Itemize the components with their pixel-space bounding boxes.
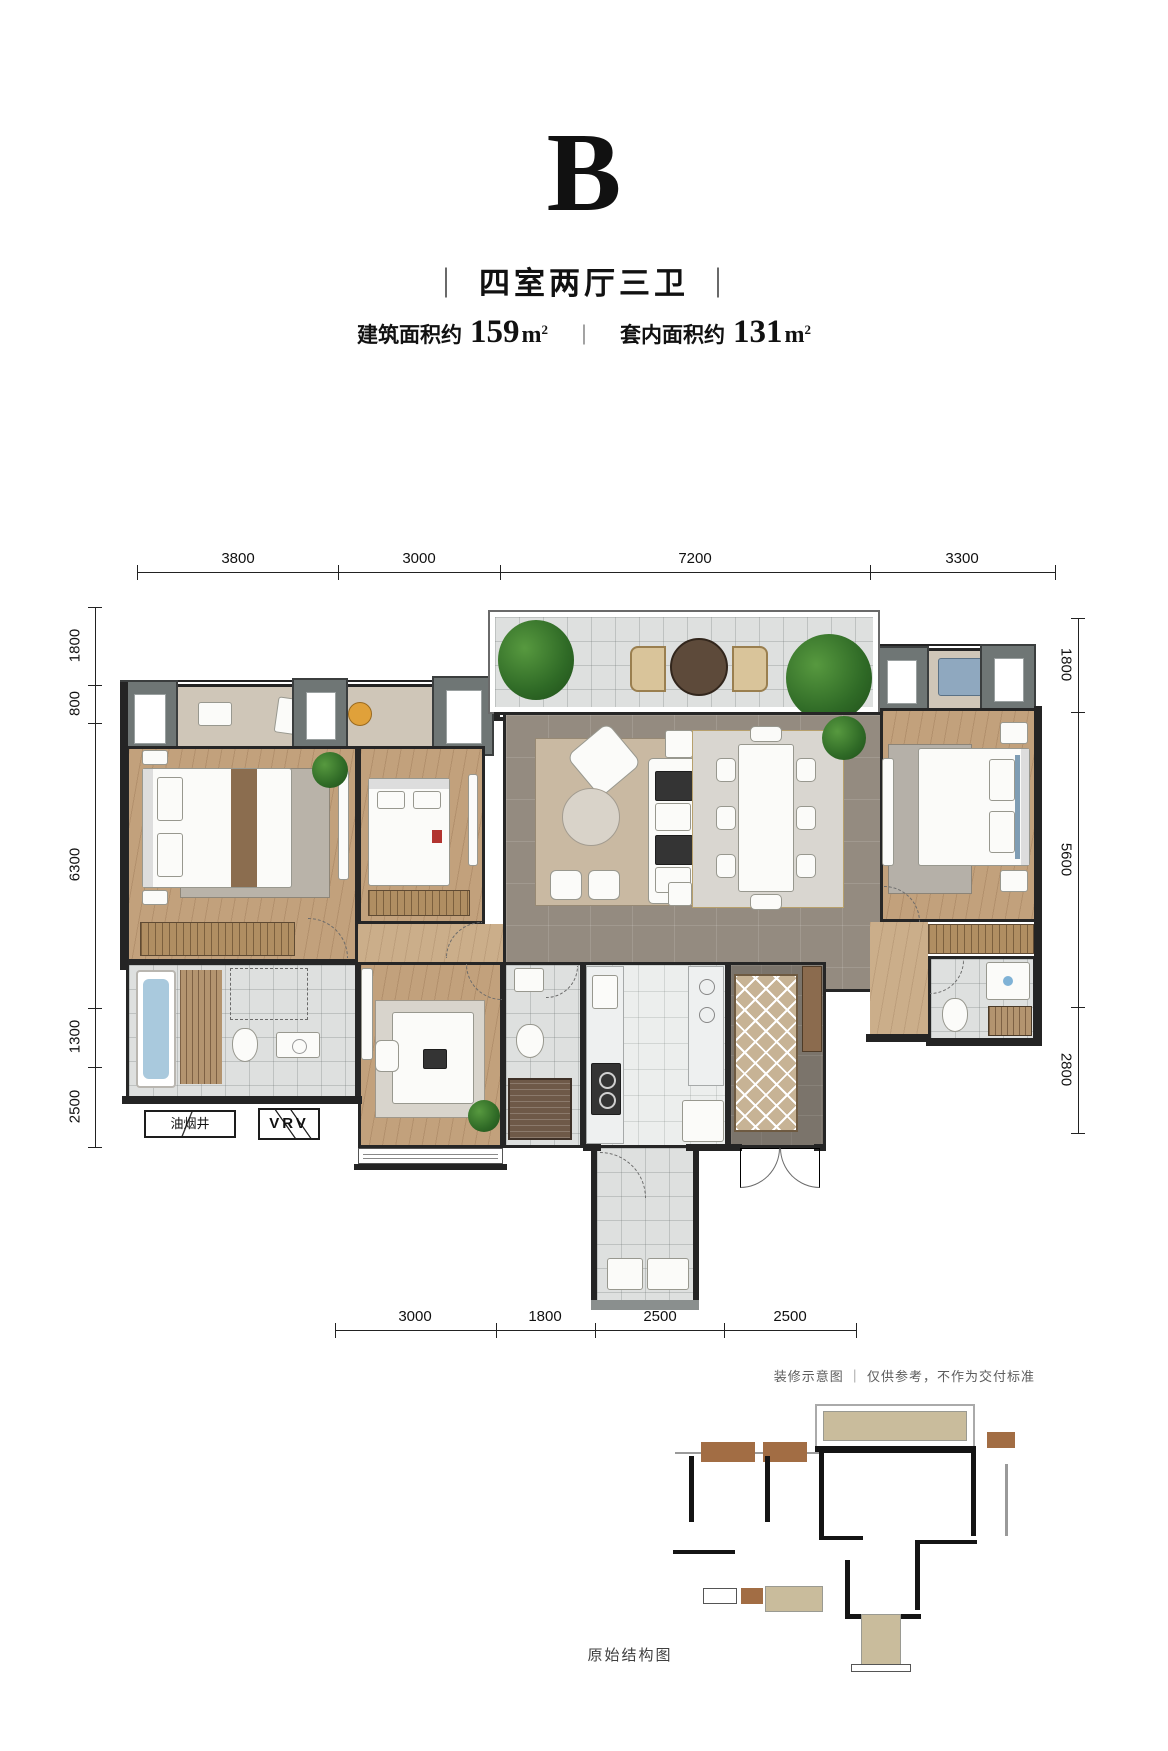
sd-brown-bar — [987, 1432, 1015, 1448]
sd-entry-corridor — [861, 1614, 901, 1666]
fruit-plate — [348, 702, 372, 726]
dim-label: 1800 — [505, 1308, 585, 1325]
toilet — [942, 998, 968, 1032]
sd-wall — [765, 1456, 770, 1522]
wall — [354, 1164, 507, 1170]
dining-table — [738, 744, 794, 892]
double-bed — [918, 748, 1030, 866]
sd-wall — [819, 1536, 863, 1540]
side-table — [668, 882, 692, 906]
toilet — [516, 1024, 544, 1058]
column — [292, 678, 348, 752]
corridor-cabinet — [647, 1258, 689, 1290]
wall — [120, 682, 128, 970]
sink — [514, 968, 544, 992]
entry-door-arc — [780, 1148, 820, 1188]
sd-wall — [689, 1456, 694, 1522]
nightstand — [1000, 722, 1028, 744]
dim-label: 2500 — [750, 1308, 830, 1325]
side-table — [665, 730, 693, 758]
inner-area-unit: m — [785, 322, 805, 348]
entry-rug — [734, 974, 798, 1132]
sd-wall — [915, 1540, 977, 1544]
column — [873, 646, 929, 716]
smoke-shaft-label: 油烟井 — [170, 1116, 209, 1131]
dim-label: 6300 — [67, 825, 84, 905]
structure-caption: 原始结构图 — [560, 1644, 700, 1664]
plant — [312, 752, 348, 788]
tv-cabinet — [338, 770, 349, 880]
dim-label: 3000 — [375, 1308, 455, 1325]
dim-label: 2800 — [1058, 1030, 1075, 1110]
entry-door-arc — [740, 1148, 780, 1188]
sd-brown-bar — [701, 1442, 755, 1462]
desk — [392, 1012, 474, 1104]
hallway-master — [870, 922, 928, 1040]
coffee-table — [562, 788, 620, 846]
vrv-label: VRV — [269, 1115, 309, 1132]
dining-chair — [716, 854, 736, 878]
unit-letter: B — [0, 112, 1168, 235]
inner-area-label: 套内面积约 — [620, 323, 725, 347]
book-decor — [432, 830, 442, 843]
dining-chair — [716, 758, 736, 782]
sd-balcony — [823, 1411, 967, 1441]
balcony-table — [670, 638, 728, 696]
vanity-sink — [276, 1032, 320, 1058]
wall — [866, 1034, 930, 1042]
column — [120, 680, 178, 756]
shower-floor — [508, 1078, 572, 1140]
tv-cabinet — [468, 774, 478, 866]
column — [980, 644, 1036, 714]
wall — [926, 1038, 1042, 1046]
bath-mat — [180, 970, 222, 1084]
sd-step — [851, 1664, 911, 1672]
entry-cabinet — [802, 966, 822, 1052]
smoke-shaft-box: 油烟井 — [144, 1110, 236, 1138]
plant — [498, 620, 574, 700]
wall — [693, 1148, 699, 1306]
wall — [591, 1148, 597, 1306]
sd-wall — [1005, 1464, 1008, 1536]
dim-label: 2500 — [620, 1308, 700, 1325]
gross-area-label: 建筑面积约 — [357, 323, 462, 347]
nightstand — [1000, 870, 1028, 892]
wall — [1034, 706, 1042, 1044]
dim-label: 3300 — [922, 550, 1002, 567]
desk-chair — [375, 1040, 399, 1072]
dresser — [882, 758, 894, 866]
dim-label: 800 — [67, 664, 84, 744]
gross-area-unit: m — [522, 322, 542, 348]
nightstand — [142, 750, 168, 765]
dim-label: 1800 — [1058, 625, 1075, 705]
window-bay-study — [358, 1148, 503, 1164]
disclaimer-note: 装修示意图 ｜ 仅供参考，不作为交付标准 — [635, 1366, 1035, 1386]
books-decor — [198, 702, 232, 726]
fridge — [682, 1100, 724, 1142]
layout-type-text: 四室两厅三卫 — [479, 266, 689, 301]
lounge-cushion-decor — [938, 658, 986, 696]
bathtub — [136, 970, 176, 1088]
washer — [607, 1258, 643, 1290]
wall — [686, 1144, 730, 1151]
wall — [583, 1144, 601, 1151]
wall — [122, 1096, 362, 1104]
sd-tan-strip — [765, 1586, 823, 1612]
area-info-line: 建筑面积约159m2｜套内面积约131m2 — [0, 314, 1168, 351]
sd-wall — [915, 1540, 920, 1610]
plant — [822, 716, 866, 760]
nightstand — [142, 890, 168, 905]
toilet — [232, 1028, 258, 1062]
sd-wall — [815, 1446, 975, 1453]
sd-wall — [845, 1560, 850, 1618]
gross-area-unit-exp: 2 — [542, 322, 549, 337]
dining-chair — [796, 758, 816, 782]
dining-chair — [750, 726, 782, 742]
bath-bench — [988, 1006, 1032, 1036]
dining-chair — [716, 806, 736, 830]
armchair — [588, 870, 620, 900]
armchair — [550, 870, 582, 900]
wardrobe — [140, 922, 295, 956]
column — [432, 676, 494, 756]
original-structure-diagram — [615, 1400, 1015, 1650]
dim-label: 1300 — [67, 997, 84, 1077]
layout-type-title: ｜四室两厅三卫｜ — [0, 258, 1168, 303]
balcony-chair — [630, 646, 666, 692]
plant — [786, 634, 872, 722]
floor-plan: 3800 3000 7200 3300 1800 800 6300 1300 2… — [80, 530, 1080, 1360]
vrv-box: VRV — [258, 1108, 320, 1140]
left-bar-glyph: ｜ — [431, 268, 465, 301]
balcony-chair — [732, 646, 768, 692]
dining-chair — [750, 894, 782, 910]
kitchen-counter — [586, 966, 624, 1144]
sd-wall — [819, 1446, 824, 1538]
sd-shaft-box — [703, 1588, 737, 1604]
dining-chair — [796, 806, 816, 830]
inner-area-unit-exp: 2 — [805, 322, 812, 337]
shower-glass — [230, 968, 308, 1020]
area-delimiter: ｜ — [574, 325, 594, 347]
plant — [468, 1100, 500, 1132]
sd-brown-box — [741, 1588, 763, 1604]
dining-chair — [796, 854, 816, 878]
wardrobe — [928, 924, 1034, 954]
dim-label: 5600 — [1058, 820, 1075, 900]
right-bar-glyph: ｜ — [703, 268, 737, 301]
gross-area-value: 159 — [470, 314, 520, 350]
inner-area-value: 131 — [733, 314, 783, 350]
sd-wall — [971, 1446, 976, 1536]
dim-label: 7200 — [655, 550, 735, 567]
dim-label: 2500 — [67, 1067, 84, 1147]
double-bed — [142, 768, 292, 888]
shower — [986, 962, 1030, 1000]
dim-label: 3800 — [198, 550, 278, 567]
wardrobe — [368, 890, 470, 916]
corridor-step — [591, 1300, 699, 1310]
kitchen-counter — [688, 966, 724, 1086]
sd-wall — [673, 1550, 735, 1554]
dim-label: 3000 — [379, 550, 459, 567]
bookshelf — [361, 968, 373, 1060]
